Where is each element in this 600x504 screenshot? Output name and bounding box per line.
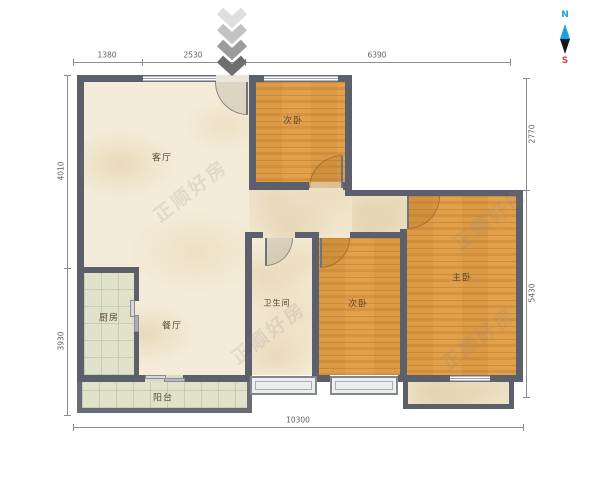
dimension-line-top: [73, 62, 510, 63]
wall-segment: [183, 375, 252, 382]
wall-segment: [249, 75, 264, 82]
dimension-line-bottom: [73, 427, 523, 428]
balcony-sliding-door: [164, 378, 185, 382]
dimension-tick: [142, 59, 143, 66]
dimension-tick: [73, 59, 74, 66]
dimension-label: 6390: [367, 51, 386, 60]
dimension-label: 10300: [286, 416, 310, 425]
kitchen-sliding-door: [134, 315, 139, 332]
wall-segment: [77, 75, 143, 82]
dimension-tick: [510, 59, 511, 66]
floor-plan: 客厅 次卧 餐厅 厨房 卫生间 次卧 主卧 阳台 1380 2530 6390 …: [0, 0, 600, 504]
room-label-bedroom-mid: 次卧: [348, 297, 368, 310]
window: [264, 75, 338, 82]
entrance-threshold: [216, 75, 249, 82]
dimension-label: 2770: [528, 124, 537, 143]
dimension-tick: [523, 424, 524, 431]
dimension-tick: [64, 75, 71, 76]
compass-south-label: S: [562, 56, 568, 66]
wall-segment: [400, 229, 407, 382]
wall-segment: [77, 75, 84, 382]
compass-icon: [556, 22, 574, 56]
master-balcony-floor: [408, 382, 509, 404]
wall-segment: [312, 232, 319, 382]
dimension-tick: [73, 424, 74, 431]
dimension-label: 5430: [528, 283, 537, 302]
balcony-wall: [77, 408, 252, 413]
bay-window-inner: [255, 381, 312, 390]
wall-segment: [317, 375, 330, 382]
room-label-master: 主卧: [452, 271, 472, 284]
wall-segment: [400, 190, 407, 196]
bay-window: [330, 376, 398, 395]
dimension-tick: [523, 78, 530, 79]
wall-segment: [77, 375, 145, 382]
wall-segment: [516, 190, 523, 382]
room-label-bedroom-top: 次卧: [283, 114, 303, 127]
wall-segment: [249, 182, 309, 190]
hallway-floor: [249, 182, 352, 238]
room-label-dining: 餐厅: [162, 319, 182, 332]
dimension-label: 2530: [183, 51, 202, 60]
window: [143, 75, 216, 82]
window: [450, 375, 490, 382]
room-label-kitchen: 厨房: [99, 311, 119, 324]
wall-segment: [134, 267, 139, 301]
entrance-arrow-icon: [215, 4, 249, 76]
wall-segment: [249, 82, 256, 190]
dimension-label: 4010: [57, 161, 66, 180]
wall-segment: [350, 232, 407, 238]
dimension-tick: [523, 397, 530, 398]
dimension-tick: [64, 268, 71, 269]
dimension-tick: [64, 415, 71, 416]
dimension-label: 3930: [57, 331, 66, 350]
master-balcony-wall: [403, 404, 514, 409]
dimension-line-left: [67, 75, 68, 415]
room-label-living: 客厅: [152, 151, 172, 164]
wall-segment: [84, 267, 139, 273]
bay-window: [250, 376, 317, 395]
wall-segment: [345, 75, 352, 196]
room-kitchen-floor: [84, 273, 134, 375]
wall-segment: [343, 182, 352, 190]
balcony-sliding-door: [145, 375, 166, 379]
compass-north-label: N: [561, 10, 569, 20]
bay-window-inner: [335, 381, 393, 390]
wall-segment: [490, 375, 523, 382]
dimension-label: 1380: [97, 51, 116, 60]
room-label-balcony: 阳台: [153, 391, 173, 404]
master-balcony-wall: [509, 378, 514, 409]
